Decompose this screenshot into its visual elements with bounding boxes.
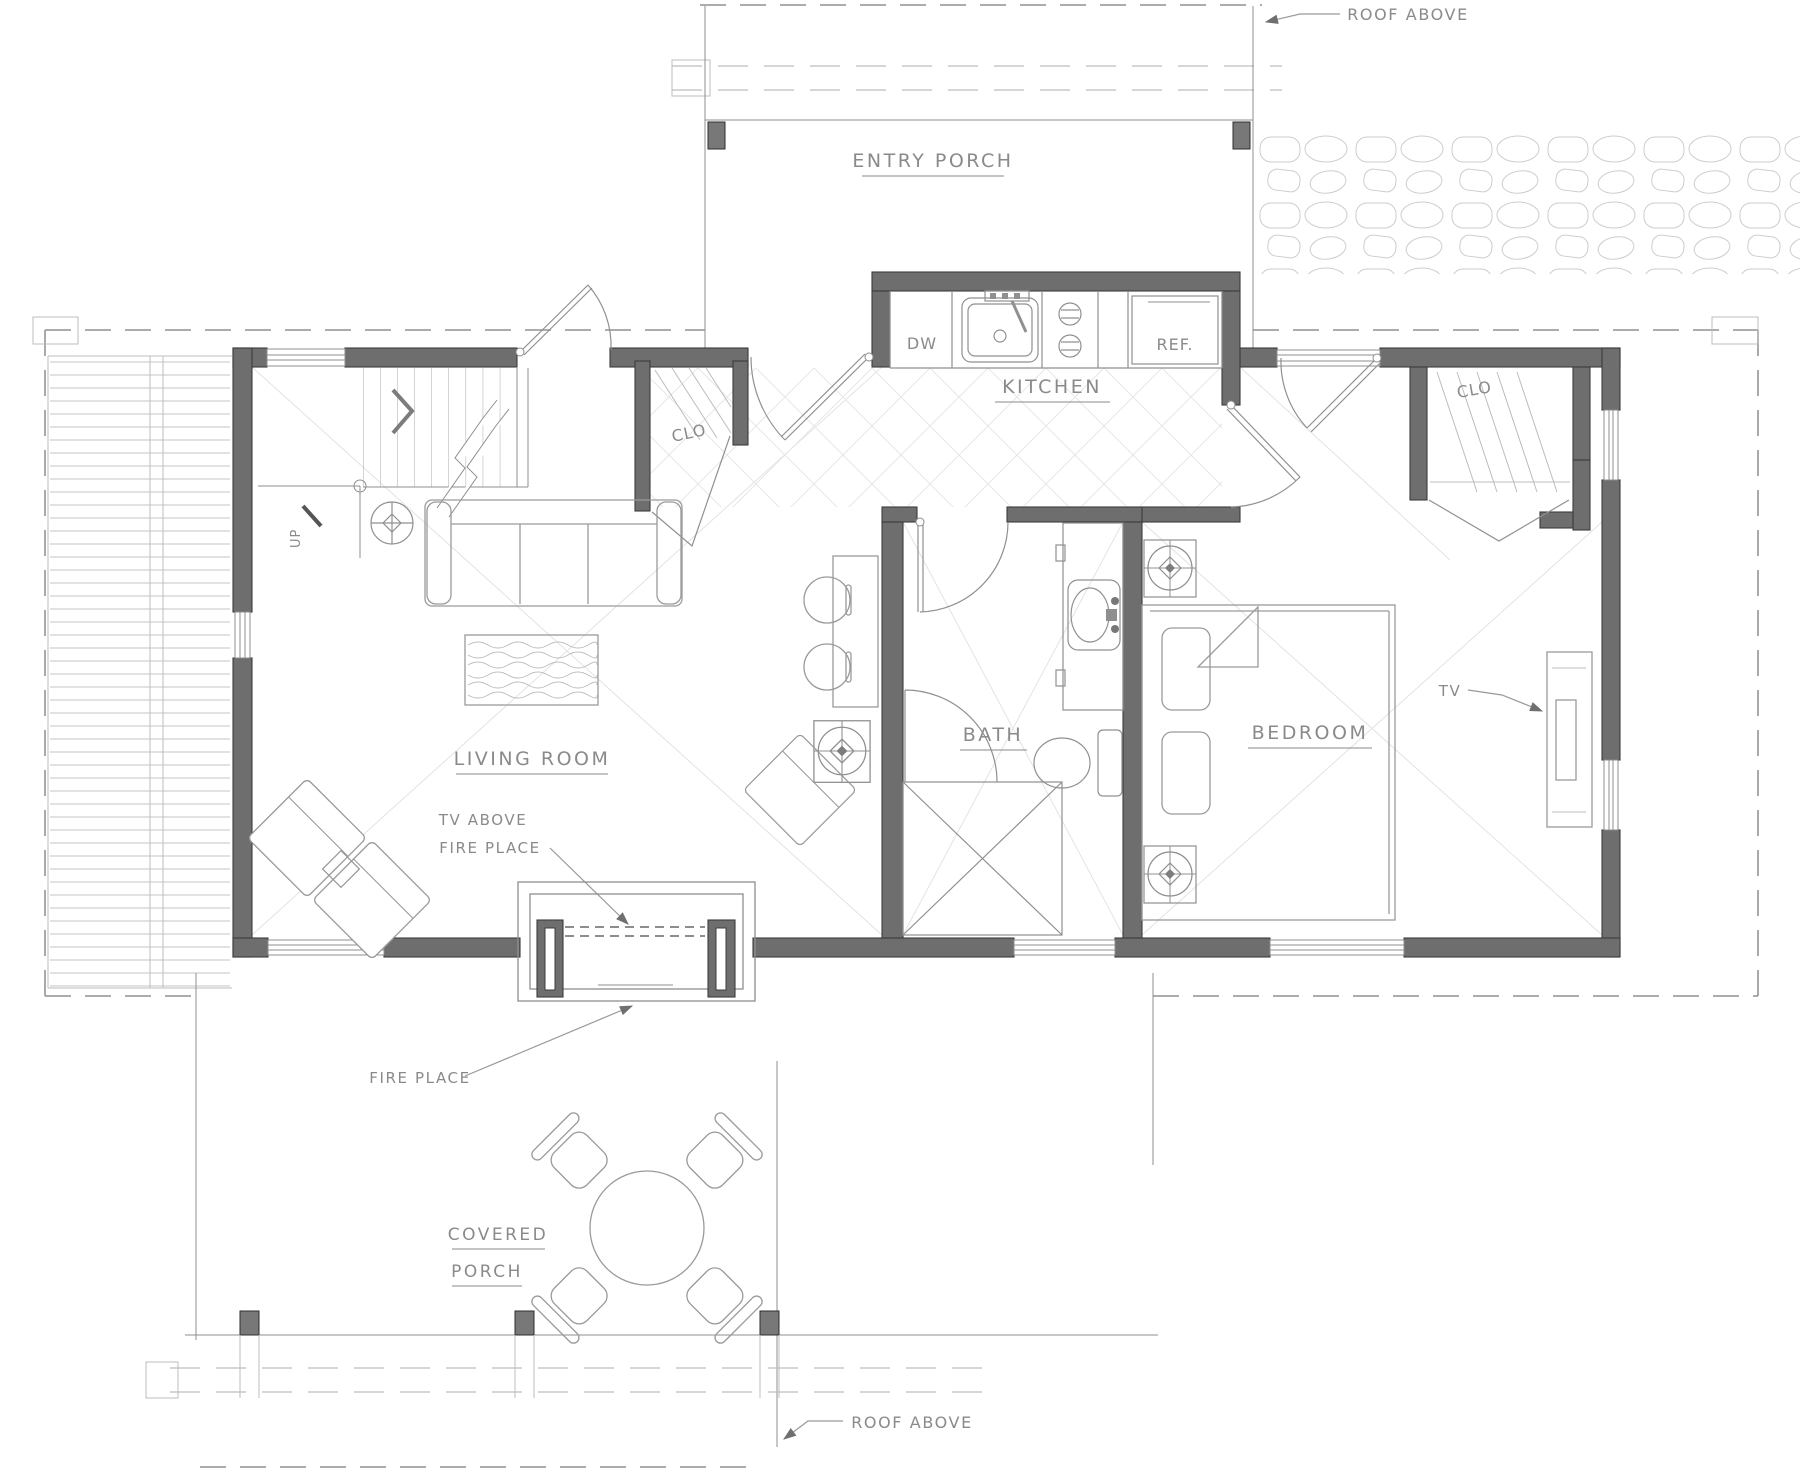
fireplace: FIRE PLACE: [369, 882, 755, 1087]
wall-right: [1602, 348, 1620, 410]
pillow: [1162, 628, 1210, 710]
stair-rail: [258, 486, 360, 558]
range-burners: [1059, 303, 1081, 357]
faucet: [1106, 609, 1117, 621]
bedroom-door: [1227, 401, 1300, 507]
sofa: [425, 500, 682, 606]
dishwasher-label: DW: [907, 334, 937, 353]
tv-leader: [1468, 690, 1542, 711]
door-hinge: [516, 348, 524, 356]
wall-bath-bedroom: [1123, 522, 1142, 938]
wall-top: [1380, 348, 1620, 367]
covered-porch: COVERED PORCH: [146, 973, 1158, 1467]
wall-left: [233, 348, 252, 612]
window: [1604, 410, 1618, 480]
roof-above-top-leader: [1266, 14, 1340, 22]
tv-console: [1547, 652, 1592, 827]
tv-above-leader: [550, 848, 628, 924]
window: [1270, 940, 1404, 955]
window: [1604, 760, 1618, 830]
dining-chair: [530, 1111, 618, 1199]
wall-top: [345, 348, 517, 367]
dining-set: [530, 1111, 765, 1346]
deck-planks: [48, 356, 232, 988]
dining-chair: [530, 1258, 618, 1346]
wall-closet-bedroom: [1573, 460, 1590, 530]
porch-post: [708, 122, 725, 149]
wall-kitchen-top: [872, 272, 1240, 291]
toilet: [1034, 730, 1122, 796]
wall-top: [610, 348, 748, 367]
window: [267, 349, 345, 366]
round-table: [590, 1171, 704, 1285]
bath-label: BATH: [963, 724, 1023, 746]
sink-drain: [994, 330, 1006, 342]
wall-top: [1240, 348, 1277, 367]
stairs: UP: [258, 368, 528, 558]
wall-left: [233, 658, 252, 957]
wall-kitchen-right: [1222, 291, 1240, 405]
wall-closet-bedroom: [1573, 367, 1590, 460]
refrigerator-label: REF.: [1157, 335, 1194, 354]
dining-chair: [677, 1111, 765, 1199]
dining-chair: [677, 1258, 765, 1346]
kitchen-tile-floor: [640, 368, 1222, 507]
porch-steps: [240, 1335, 779, 1398]
bedroom-label: BEDROOM: [1252, 722, 1369, 744]
cabinet-pull: [1056, 670, 1065, 686]
porch-beam-dash: [170, 1368, 985, 1392]
desk-chair: [804, 644, 850, 690]
window: [235, 612, 250, 658]
bath-door: [916, 518, 1008, 612]
closet-bedroom: CLO: [1430, 372, 1570, 492]
living-room-furniture: LIVING ROOM TV ABOVE FIRE PLACE: [248, 500, 878, 959]
stair-treads: [363, 368, 517, 487]
stone-patio: [1256, 132, 1800, 274]
sheet-fold: [1198, 607, 1258, 667]
wall-bottom: [1115, 938, 1270, 957]
rug: [465, 635, 598, 705]
up-label: UP: [289, 529, 304, 548]
closet-rod-lines: [1430, 372, 1570, 492]
kitchen-label: KITCHEN: [1002, 376, 1102, 398]
fire-place-leader: [465, 1006, 632, 1076]
door-hinge: [865, 353, 873, 361]
bedroom-furniture: BEDROOM TV: [1142, 540, 1592, 920]
covered-porch-edges: [185, 973, 1158, 1447]
wall-bottom: [384, 938, 520, 957]
desk: [804, 556, 878, 707]
wall-closet-entry: [733, 361, 748, 445]
counter: [890, 291, 1222, 368]
wall-right: [1602, 480, 1620, 760]
porch-post: [240, 1311, 259, 1335]
desk-chair: [804, 577, 850, 623]
wall-bottom: [1404, 938, 1620, 957]
floor-plan-drawing: ENTRY PORCH: [0, 0, 1800, 1471]
tv-label: TV: [1438, 682, 1462, 700]
faucet-lever: [1012, 301, 1026, 332]
cabinet-pull: [1056, 545, 1065, 561]
porch-post: [1233, 122, 1250, 149]
tv-dashed-outline: [565, 927, 705, 936]
tv-above-label-1: TV ABOVE: [438, 811, 528, 829]
side-table-round: [371, 502, 413, 544]
side-deck: [48, 356, 232, 988]
tv-above-label-2: FIRE PLACE: [439, 839, 540, 857]
front-door: [516, 285, 611, 356]
patio-door-threshold: [1277, 350, 1380, 366]
entry-porch-beam-dash: [672, 66, 1282, 90]
pillow: [1162, 732, 1210, 814]
refrigerator: REF.: [1132, 296, 1218, 364]
fire-place-label: FIRE PLACE: [369, 1069, 470, 1087]
door-hinge: [916, 518, 924, 526]
wall-kitchen-left: [872, 291, 890, 367]
door-hinge: [1227, 401, 1235, 409]
vanity-sink: [1071, 588, 1109, 642]
covered-porch-label-1: COVERED: [448, 1225, 548, 1245]
covered-porch-label-2: PORCH: [451, 1262, 523, 1282]
wall-closet-bedroom: [1410, 367, 1427, 500]
rail-tick: [303, 506, 321, 526]
window: [1014, 940, 1115, 955]
roof-above-top-label: ROOF ABOVE: [1347, 5, 1469, 24]
ceiling-fan-icon: [1144, 540, 1196, 597]
wall-bath-top: [1007, 507, 1142, 522]
wall-bath-top: [882, 507, 917, 522]
vanity: [1056, 523, 1123, 710]
porch-post: [760, 1311, 779, 1335]
wall-living-bath: [882, 522, 903, 938]
porch-post: [515, 1311, 534, 1335]
closet-bedroom-label: CLO: [1455, 377, 1493, 402]
wall-bottom: [753, 938, 1014, 957]
wall-hall-bedroom: [1142, 507, 1240, 522]
ceiling-fan-icon: [1144, 846, 1196, 903]
toilet-bowl: [1034, 738, 1090, 788]
kitchen-sink: [962, 291, 1038, 362]
roof-above-bottom-leader: [784, 1421, 843, 1439]
roof-above-bottom-label: ROOF ABOVE: [851, 1413, 973, 1432]
entry-porch-label: ENTRY PORCH: [852, 150, 1013, 172]
wall-closet-entry: [635, 361, 650, 511]
wall-bottom: [233, 938, 268, 957]
door-hinge: [1373, 354, 1381, 362]
living-room-label: LIVING ROOM: [454, 748, 611, 770]
